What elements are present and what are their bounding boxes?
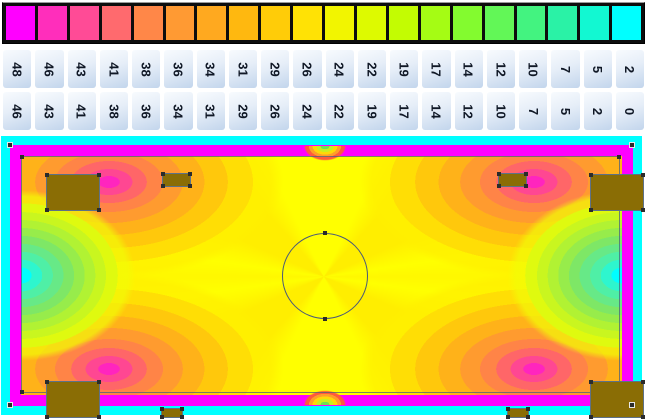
- scale-value: 14: [461, 62, 476, 76]
- resize-handle[interactable]: [45, 380, 49, 384]
- furniture-rect-bottom-left[interactable]: [46, 381, 100, 418]
- resize-handle[interactable]: [97, 208, 101, 212]
- resize-handle[interactable]: [526, 415, 530, 419]
- scale-value-box: 31: [229, 50, 257, 88]
- scale-value: 17: [397, 104, 412, 118]
- resize-handle[interactable]: [97, 415, 101, 419]
- resize-handle[interactable]: [180, 415, 184, 419]
- scale-value: 24: [332, 62, 347, 76]
- scale-value: 34: [171, 104, 186, 118]
- scale-value-box: 41: [100, 50, 128, 88]
- color-swatch: [548, 6, 577, 40]
- resize-handle[interactable]: [97, 173, 101, 177]
- resize-handle[interactable]: [641, 415, 645, 419]
- frame-handle[interactable]: [8, 143, 12, 147]
- scale-value-box: 36: [164, 50, 192, 88]
- resize-handle[interactable]: [45, 173, 49, 177]
- scale-value: 24: [300, 104, 315, 118]
- scale-value: 46: [42, 62, 57, 76]
- scale-value: 14: [429, 104, 444, 118]
- scale-value: 7: [526, 107, 541, 114]
- scale-value-box: 24: [293, 92, 321, 130]
- scale-value: 2: [622, 65, 637, 72]
- scale-value-box: 12: [455, 92, 483, 130]
- scale-value: 17: [429, 62, 444, 76]
- furniture-small-top-left[interactable]: [162, 173, 191, 187]
- scale-value-box: 2: [616, 50, 644, 88]
- scale-value: 43: [74, 62, 89, 76]
- scale-value-box: 26: [261, 92, 289, 130]
- scale-value: 26: [268, 104, 283, 118]
- color-swatch: [6, 6, 35, 40]
- resize-handle[interactable]: [617, 155, 621, 159]
- resize-handle[interactable]: [97, 380, 101, 384]
- scale-value: 7: [558, 65, 573, 72]
- color-swatch: [357, 6, 386, 40]
- scale-value-box: 10: [487, 92, 515, 130]
- scale-value-box: 22: [358, 50, 386, 88]
- color-swatch: [134, 6, 163, 40]
- scale-value-box: 38: [100, 92, 128, 130]
- resize-handle[interactable]: [589, 415, 593, 419]
- scale-value: 38: [139, 62, 154, 76]
- color-swatch: [517, 6, 546, 40]
- color-swatch: [102, 6, 131, 40]
- scale-value-box: 12: [487, 50, 515, 88]
- scale-value: 19: [397, 62, 412, 76]
- scale-value: 36: [139, 104, 154, 118]
- scale-value-box: 41: [68, 92, 96, 130]
- resize-handle[interactable]: [323, 231, 327, 235]
- resize-handle[interactable]: [641, 208, 645, 212]
- scale-value: 38: [106, 104, 121, 118]
- scale-value-box: 43: [35, 92, 63, 130]
- color-swatch: [612, 6, 641, 40]
- scale-value-box: 22: [326, 92, 354, 130]
- resize-handle[interactable]: [20, 155, 24, 159]
- scale-value-box: 7: [551, 50, 579, 88]
- scale-value-box: 14: [422, 92, 450, 130]
- scale-value: 22: [332, 104, 347, 118]
- false-color-map[interactable]: [1, 136, 642, 415]
- color-swatch: [197, 6, 226, 40]
- scale-value: 12: [493, 62, 508, 76]
- furniture-rect-top-right[interactable]: [590, 174, 644, 211]
- scale-value-box: 48: [3, 50, 31, 88]
- color-swatch: [261, 6, 290, 40]
- color-swatch: [453, 6, 482, 40]
- resize-handle[interactable]: [161, 184, 165, 188]
- resize-handle[interactable]: [188, 172, 192, 176]
- resize-handle[interactable]: [641, 380, 645, 384]
- color-strip: [2, 2, 645, 44]
- resize-handle[interactable]: [323, 317, 327, 321]
- color-swatch: [485, 6, 514, 40]
- scale-value: 0: [622, 107, 637, 114]
- scale-value: 36: [171, 62, 186, 76]
- scale-value: 26: [300, 62, 315, 76]
- scale-value-box: 36: [132, 92, 160, 130]
- scale-value-box: 34: [197, 50, 225, 88]
- furniture-rect-bottom-right[interactable]: [590, 381, 644, 418]
- resize-handle[interactable]: [641, 173, 645, 177]
- scale-value-box: 46: [35, 50, 63, 88]
- scale-value: 41: [106, 62, 121, 76]
- scale-value: 22: [364, 62, 379, 76]
- scale-value-box: 19: [358, 92, 386, 130]
- scale-value-box: 17: [422, 50, 450, 88]
- scale-value-box: 2: [584, 92, 612, 130]
- scale-value: 10: [526, 62, 541, 76]
- resize-handle[interactable]: [45, 415, 49, 419]
- scale-value: 5: [590, 65, 605, 72]
- resize-handle[interactable]: [180, 407, 184, 411]
- resize-handle[interactable]: [524, 184, 528, 188]
- scale-value: 48: [10, 62, 25, 76]
- scale-value-box: 24: [326, 50, 354, 88]
- scale-value-box: 7: [519, 92, 547, 130]
- resize-handle[interactable]: [497, 172, 501, 176]
- resize-handle[interactable]: [188, 184, 192, 188]
- resize-handle[interactable]: [161, 172, 165, 176]
- resize-handle[interactable]: [497, 184, 501, 188]
- resize-handle[interactable]: [45, 208, 49, 212]
- scale-value: 10: [493, 104, 508, 118]
- scale-value-box: 5: [584, 50, 612, 88]
- furniture-small-bottom-right[interactable]: [507, 408, 529, 418]
- color-swatch: [38, 6, 67, 40]
- center-circle-object[interactable]: [282, 233, 368, 319]
- color-swatch: [293, 6, 322, 40]
- scale-value: 29: [268, 62, 283, 76]
- scale-value-box: 0: [616, 92, 644, 130]
- scale-value-box: 10: [519, 50, 547, 88]
- resize-handle[interactable]: [160, 415, 164, 419]
- scale-value: 34: [203, 62, 218, 76]
- color-swatch: [580, 6, 609, 40]
- resize-handle[interactable]: [589, 380, 593, 384]
- color-swatch: [325, 6, 354, 40]
- scale-value-box: 38: [132, 50, 160, 88]
- resize-handle[interactable]: [526, 407, 530, 411]
- scale-value-box: 46: [3, 92, 31, 130]
- color-swatch: [229, 6, 258, 40]
- scale-row-lower: 464341383634312926242219171412107520: [3, 92, 644, 130]
- resize-handle[interactable]: [524, 172, 528, 176]
- resize-handle[interactable]: [589, 208, 593, 212]
- scale-value-box: 19: [390, 50, 418, 88]
- scale-value-box: 5: [551, 92, 579, 130]
- scale-value-box: 29: [229, 92, 257, 130]
- scale-value-box: 29: [261, 50, 289, 88]
- color-swatch: [70, 6, 99, 40]
- frame-handle[interactable]: [630, 143, 634, 147]
- color-swatch: [421, 6, 450, 40]
- scale-value: 46: [10, 104, 25, 118]
- furniture-small-top-right[interactable]: [498, 173, 527, 187]
- scale-value: 19: [364, 104, 379, 118]
- frame-handle[interactable]: [630, 403, 634, 407]
- scale-value: 2: [590, 107, 605, 114]
- color-swatch: [166, 6, 195, 40]
- resize-handle[interactable]: [506, 407, 510, 411]
- furniture-small-bottom-left[interactable]: [161, 408, 183, 418]
- scale-value-box: 26: [293, 50, 321, 88]
- scale-value-box: 34: [164, 92, 192, 130]
- scale-value: 12: [461, 104, 476, 118]
- scale-value: 31: [235, 62, 250, 76]
- scale-value: 5: [558, 107, 573, 114]
- resize-handle[interactable]: [160, 407, 164, 411]
- frame-handle[interactable]: [8, 403, 12, 407]
- resize-handle[interactable]: [20, 390, 24, 394]
- scale-value-box: 14: [455, 50, 483, 88]
- colorbar-legend: 4846434138363431292624221917141210752 46…: [2, 2, 645, 130]
- scale-row-upper: 4846434138363431292624221917141210752: [3, 50, 644, 88]
- resize-handle[interactable]: [506, 415, 510, 419]
- scale-value-box: 43: [68, 50, 96, 88]
- scale-value: 41: [74, 104, 89, 118]
- scale-value: 31: [203, 104, 218, 118]
- scale-value-box: 31: [197, 92, 225, 130]
- scale-value-box: 17: [390, 92, 418, 130]
- resize-handle[interactable]: [589, 173, 593, 177]
- scale-value: 29: [235, 104, 250, 118]
- scale-value: 43: [42, 104, 57, 118]
- furniture-rect-top-left[interactable]: [46, 174, 100, 211]
- color-swatch: [389, 6, 418, 40]
